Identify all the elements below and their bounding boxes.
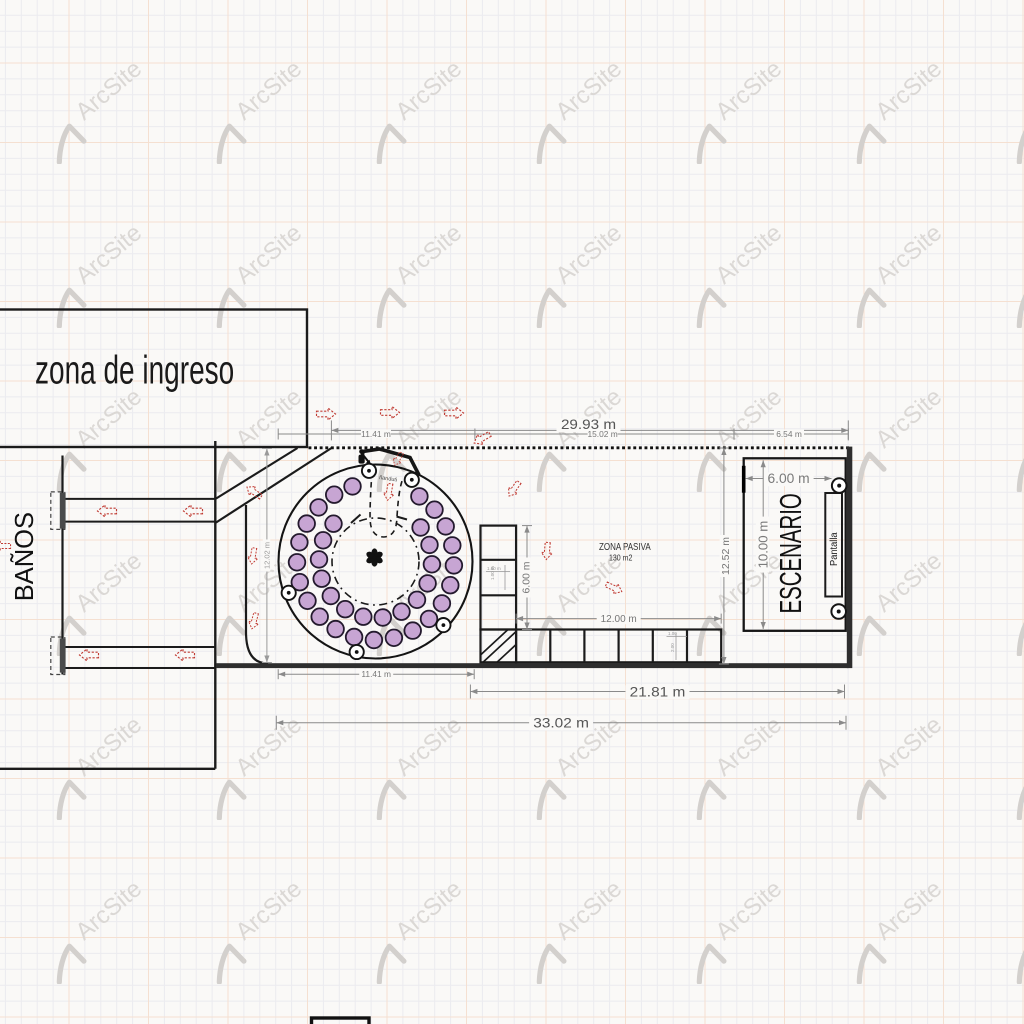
svg-text:130 m2: 130 m2	[609, 553, 632, 562]
svg-text:11.41 m: 11.41 m	[361, 429, 391, 439]
svg-text:15.02 m: 15.02 m	[587, 429, 617, 439]
svg-text:6.54 m: 6.54 m	[776, 429, 802, 439]
svg-text:21.81 m: 21.81 m	[630, 685, 686, 700]
svg-text:1.00: 1.00	[668, 631, 677, 636]
svg-text:12.52 m: 12.52 m	[720, 537, 732, 575]
svg-text:12.02 m: 12.02 m	[262, 542, 271, 569]
svg-text:10.00 m: 10.00 m	[756, 521, 771, 569]
svg-text:BAÑOS: BAÑOS	[10, 512, 39, 601]
svg-text:1.00 m: 1.00 m	[487, 566, 501, 571]
svg-text:12.00 m: 12.00 m	[601, 614, 637, 625]
svg-text:6.00 m: 6.00 m	[768, 471, 810, 486]
svg-text:33.02 m: 33.02 m	[533, 716, 589, 731]
svg-text:2.00: 2.00	[670, 643, 675, 652]
svg-text:6.00 m: 6.00 m	[521, 561, 533, 593]
svg-text:ZONA PASIVA: ZONA PASIVA	[599, 541, 651, 552]
svg-text:11.41 m: 11.41 m	[361, 669, 391, 679]
svg-text:Pantalla: Pantalla	[829, 532, 840, 566]
svg-text:ESCENARIO: ESCENARIO	[775, 493, 808, 613]
svg-text:zona de ingreso: zona de ingreso	[35, 349, 234, 393]
